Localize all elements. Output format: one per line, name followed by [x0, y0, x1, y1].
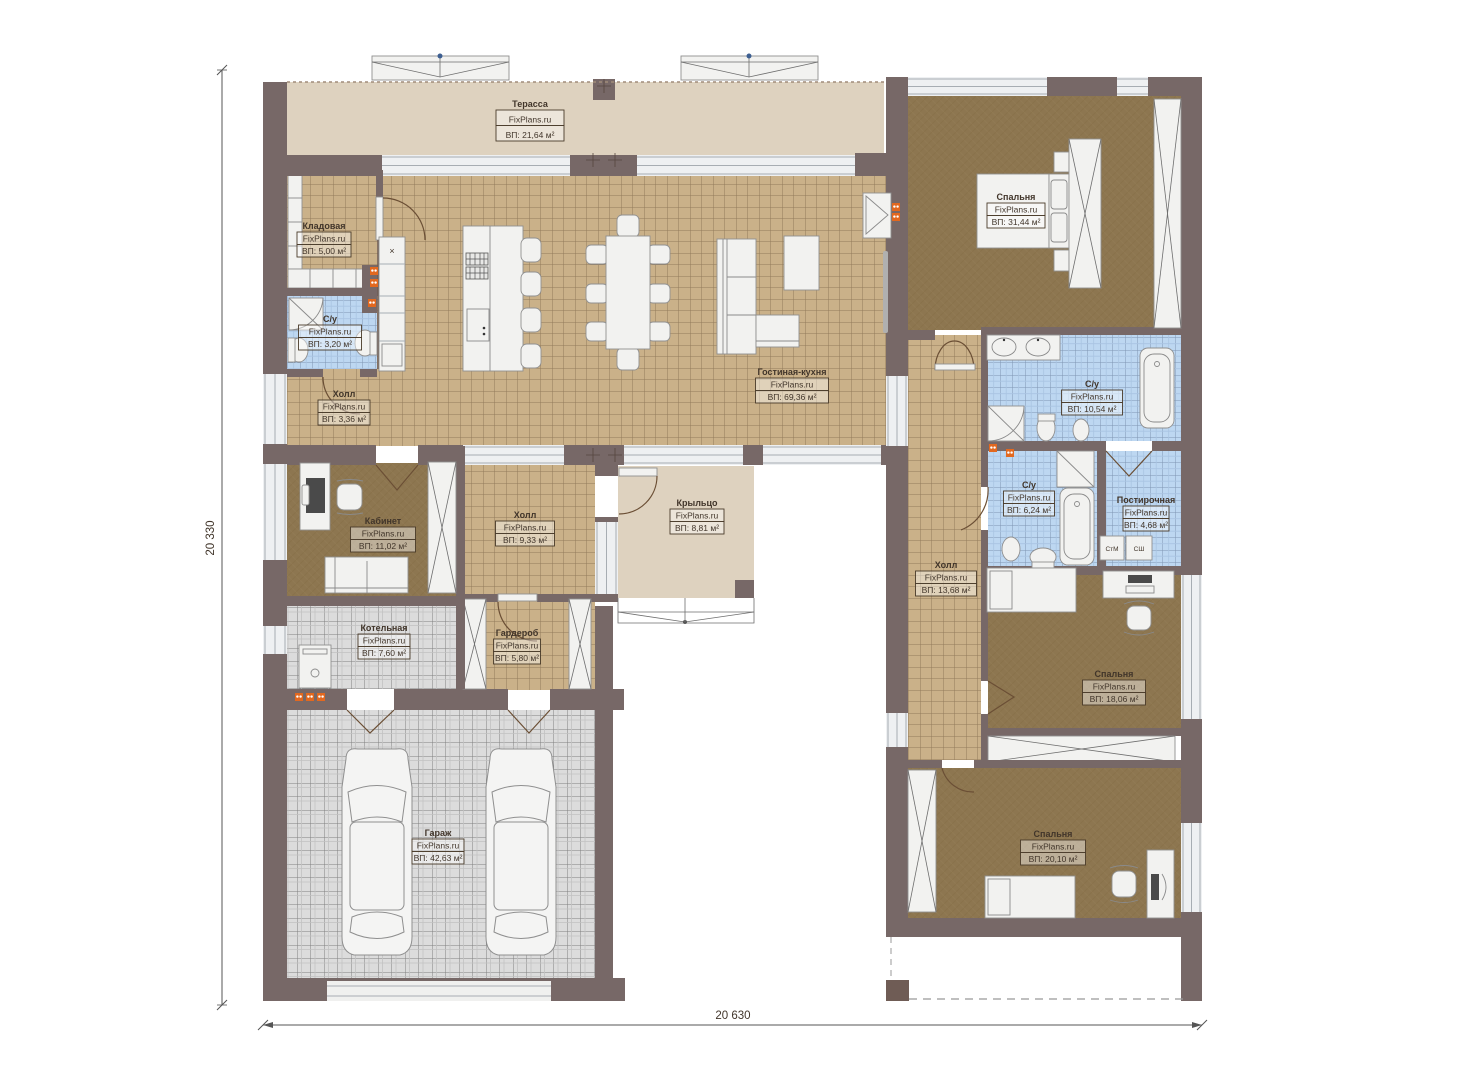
- svg-text:FixPlans.ru: FixPlans.ru: [303, 233, 346, 243]
- svg-text:Спальня: Спальня: [997, 192, 1036, 202]
- svg-text:FixPlans.ru: FixPlans.ru: [1125, 507, 1168, 517]
- svg-text:20 330: 20 330: [205, 520, 217, 555]
- svg-text:Гардероб: Гардероб: [496, 628, 539, 638]
- svg-text:FixPlans.ru: FixPlans.ru: [323, 401, 366, 411]
- svg-text:FixPlans.ru: FixPlans.ru: [925, 572, 968, 582]
- svg-text:Котельная: Котельная: [360, 623, 407, 633]
- svg-text:ВП: 69,36 м²: ВП: 69,36 м²: [768, 392, 817, 402]
- svg-text:FixPlans.ru: FixPlans.ru: [504, 522, 547, 532]
- svg-text:ВП: 5,00 м²: ВП: 5,00 м²: [302, 246, 346, 256]
- svg-text:С/у: С/у: [1022, 480, 1036, 490]
- svg-text:ВП: 3,20 м²: ВП: 3,20 м²: [308, 339, 352, 349]
- svg-text:FixPlans.ru: FixPlans.ru: [417, 840, 460, 850]
- svg-text:20 630: 20 630: [715, 1010, 750, 1022]
- svg-text:Спальня: Спальня: [1095, 669, 1134, 679]
- svg-text:FixPlans.ru: FixPlans.ru: [1071, 391, 1114, 401]
- svg-text:Кабинет: Кабинет: [365, 516, 402, 526]
- svg-text:FixPlans.ru: FixPlans.ru: [676, 510, 719, 520]
- svg-text:FixPlans.ru: FixPlans.ru: [995, 204, 1038, 214]
- svg-text:ВП: 18,06 м²: ВП: 18,06 м²: [1090, 694, 1139, 704]
- svg-text:С/у: С/у: [323, 314, 337, 324]
- svg-text:ВП: 8,81 м²: ВП: 8,81 м²: [675, 523, 719, 533]
- svg-text:Холл: Холл: [333, 389, 356, 399]
- svg-text:ВП: 31,44 м²: ВП: 31,44 м²: [992, 217, 1041, 227]
- svg-text:Холл: Холл: [935, 560, 958, 570]
- svg-text:Кладовая: Кладовая: [302, 221, 345, 231]
- svg-text:Холл: Холл: [514, 510, 537, 520]
- svg-text:FixPlans.ru: FixPlans.ru: [1093, 681, 1136, 691]
- svg-text:Терасса: Терасса: [512, 99, 549, 109]
- svg-text:СтМ: СтМ: [1105, 546, 1118, 553]
- svg-text:ВП: 4,68 м²: ВП: 4,68 м²: [1124, 520, 1168, 530]
- svg-text:Гостиная-кухня: Гостиная-кухня: [758, 367, 827, 377]
- svg-text:ВП: 10,54 м²: ВП: 10,54 м²: [1068, 404, 1117, 414]
- svg-text:С/у: С/у: [1085, 379, 1099, 389]
- svg-text:FixPlans.ru: FixPlans.ru: [363, 635, 406, 645]
- svg-text:FixPlans.ru: FixPlans.ru: [1032, 841, 1075, 851]
- svg-text:ВП: 7,60 м²: ВП: 7,60 м²: [362, 648, 406, 658]
- svg-text:FixPlans.ru: FixPlans.ru: [362, 528, 405, 538]
- svg-text:ВП: 5,80 м²: ВП: 5,80 м²: [495, 653, 539, 663]
- svg-text:ВП: 13,68 м²: ВП: 13,68 м²: [922, 585, 971, 595]
- svg-text:ВП: 20,10 м²: ВП: 20,10 м²: [1029, 854, 1078, 864]
- svg-text:СШ: СШ: [1134, 546, 1145, 553]
- svg-text:ВП: 9,33 м²: ВП: 9,33 м²: [503, 535, 547, 545]
- svg-text:Постирочная: Постирочная: [1117, 495, 1175, 505]
- svg-text:Крыльцо: Крыльцо: [677, 498, 718, 508]
- svg-text:FixPlans.ru: FixPlans.ru: [509, 114, 552, 124]
- svg-text:FixPlans.ru: FixPlans.ru: [1008, 492, 1051, 502]
- svg-text:ВП: 21,64 м²: ВП: 21,64 м²: [506, 130, 555, 140]
- svg-text:ВП: 42,63 м²: ВП: 42,63 м²: [414, 853, 463, 863]
- svg-text:Гараж: Гараж: [425, 828, 452, 838]
- svg-text:ВП: 6,24 м²: ВП: 6,24 м²: [1007, 505, 1051, 515]
- svg-text:ВП: 3,36 м²: ВП: 3,36 м²: [322, 414, 366, 424]
- svg-text:FixPlans.ru: FixPlans.ru: [771, 379, 814, 389]
- svg-text:×: ×: [389, 246, 394, 256]
- svg-text:FixPlans.ru: FixPlans.ru: [496, 640, 539, 650]
- svg-text:Спальня: Спальня: [1034, 829, 1073, 839]
- svg-text:ВП: 11,02 м²: ВП: 11,02 м²: [359, 541, 407, 551]
- svg-text:FixPlans.ru: FixPlans.ru: [309, 326, 352, 336]
